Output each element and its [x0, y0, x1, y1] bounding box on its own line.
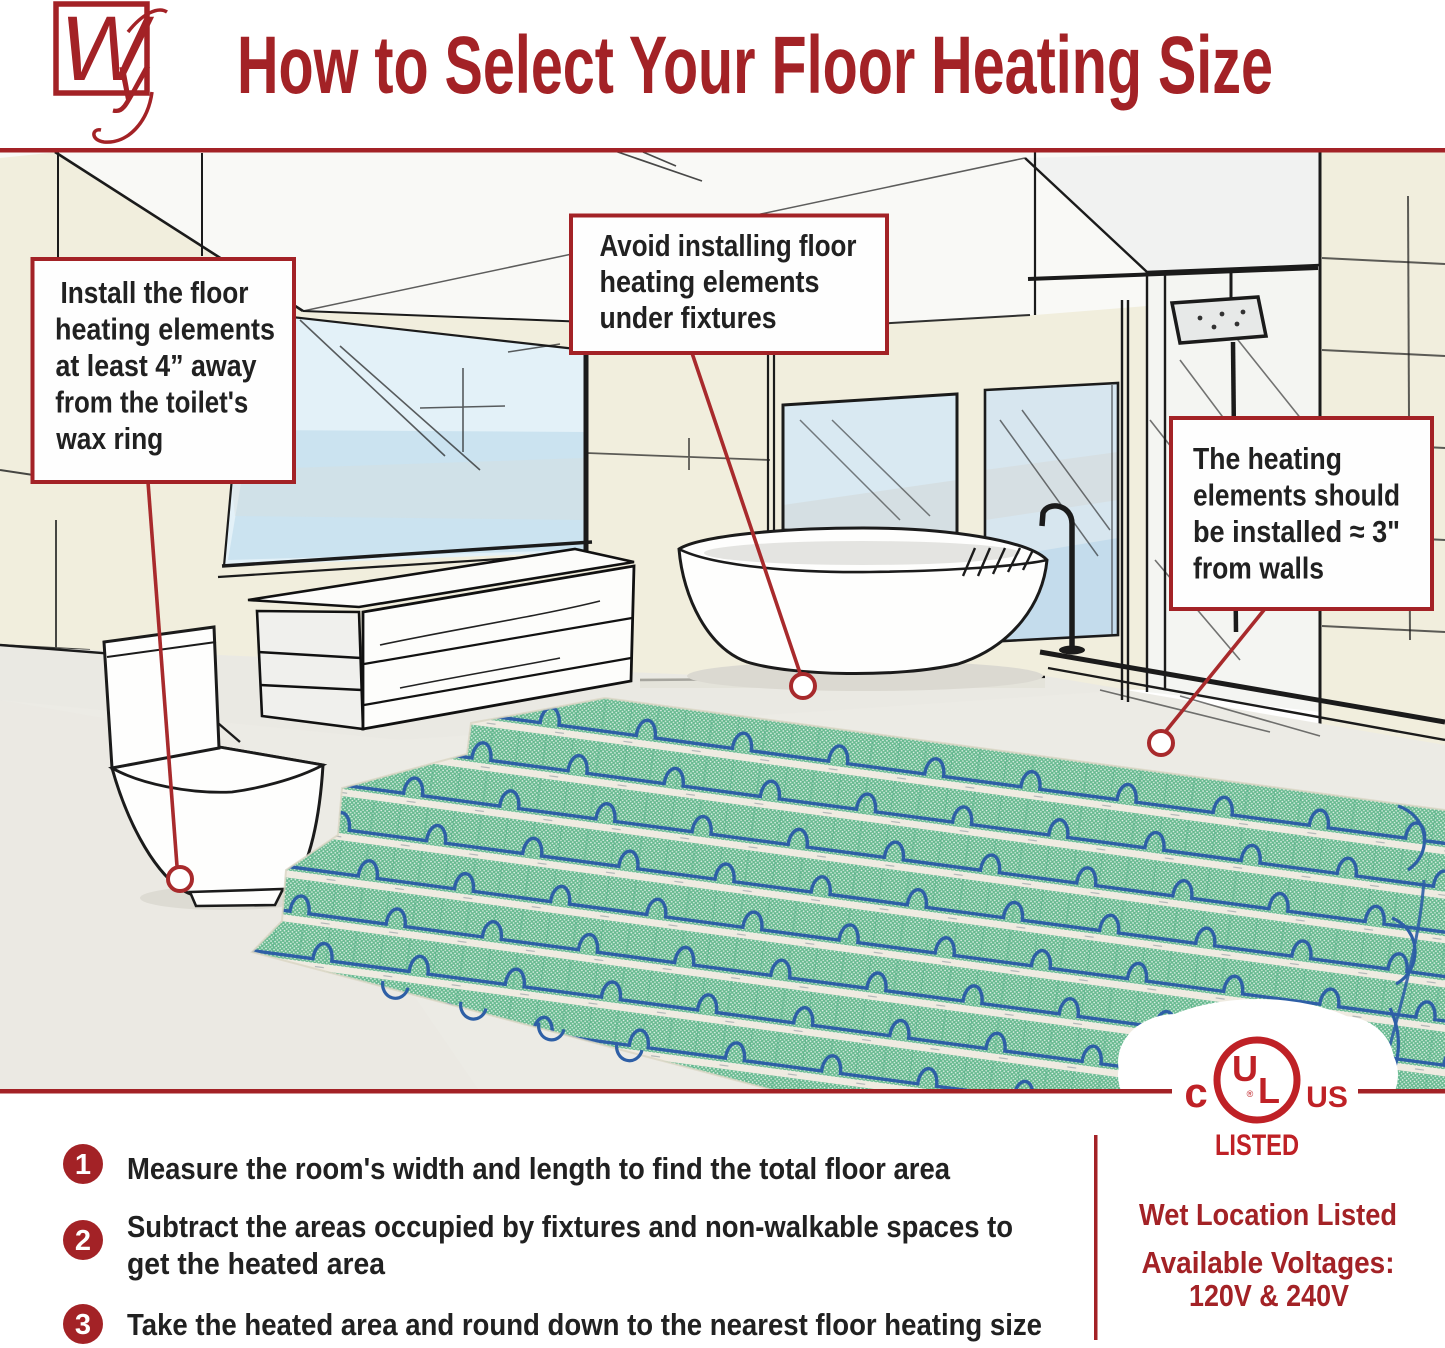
svg-text:under fixtures: under fixtures: [600, 300, 777, 335]
svg-text:The heating: The heating: [1193, 441, 1342, 476]
svg-text:be installed ≈ 3": be installed ≈ 3": [1193, 514, 1400, 549]
svg-text:LISTED: LISTED: [1215, 1129, 1299, 1162]
svg-text:US: US: [1306, 1081, 1348, 1114]
svg-text:Subtract the areas occupied by: Subtract the areas occupied by fixtures …: [127, 1209, 1013, 1244]
svg-text:120V & 240V: 120V & 240V: [1189, 1278, 1349, 1313]
svg-text:heating elements: heating elements: [55, 312, 275, 347]
svg-text:elements should: elements should: [1193, 478, 1400, 513]
svg-text:Available Voltages:: Available Voltages:: [1142, 1245, 1395, 1280]
svg-text:Install the floor: Install the floor: [61, 275, 249, 310]
svg-text:y: y: [112, 45, 151, 114]
svg-text:®: ®: [1247, 1089, 1254, 1099]
svg-text:Measure the room's width and l: Measure the room's width and length to f…: [127, 1151, 951, 1186]
svg-text:heating elements: heating elements: [600, 264, 820, 299]
svg-text:2: 2: [75, 1225, 91, 1257]
svg-text:from walls: from walls: [1193, 551, 1324, 586]
svg-text:Take the heated area and round: Take the heated area and round down to t…: [127, 1307, 1042, 1342]
svg-text:wax ring: wax ring: [55, 421, 163, 456]
svg-text:L: L: [1258, 1070, 1280, 1111]
svg-text:Avoid installing floor: Avoid installing floor: [600, 228, 857, 263]
svg-text:1: 1: [75, 1149, 91, 1181]
svg-text:How to Select Your Floor Heati: How to Select Your Floor Heating Size: [237, 20, 1273, 111]
svg-text:at least 4” away: at least 4” away: [56, 348, 258, 383]
svg-text:c: c: [1184, 1069, 1207, 1116]
svg-text:Wet Location Listed: Wet Location Listed: [1139, 1197, 1397, 1232]
svg-text:U: U: [1232, 1048, 1258, 1089]
svg-text:get the heated area: get the heated area: [127, 1246, 386, 1281]
svg-text:3: 3: [75, 1309, 91, 1341]
svg-text:from the toilet's: from the toilet's: [55, 385, 248, 420]
